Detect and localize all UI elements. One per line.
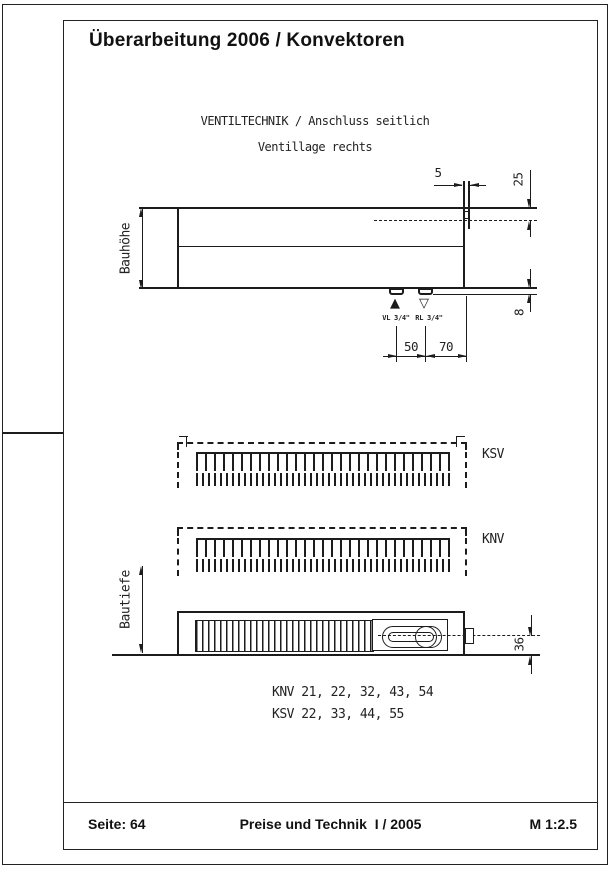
pipe-coupling-tick	[463, 211, 470, 212]
fold-mark	[2, 432, 63, 434]
corner-tick	[465, 442, 467, 450]
top-edge-extension-left	[139, 207, 177, 209]
dim-50: 50	[396, 339, 426, 354]
fin-comb-row	[196, 452, 450, 471]
return-triangle-icon: ▽	[419, 297, 429, 310]
drawing-title-line2: Ventillage rechts	[150, 140, 480, 154]
bracket-hook	[456, 436, 465, 437]
knv-label: KNV	[482, 532, 504, 547]
footer-scale: M 1:2.5	[530, 816, 577, 832]
ksv-label: KSV	[482, 447, 504, 462]
dim-70: 70	[431, 339, 461, 354]
arrowhead	[527, 221, 531, 230]
valve-spindle	[388, 632, 434, 642]
dimension-line-bautiefe	[142, 566, 143, 653]
pipe-coupling-tick	[463, 218, 470, 219]
bottom-edge-extension-left	[139, 287, 177, 289]
footer-edition: Preise und Technik I / 2005	[63, 816, 598, 832]
bautiefe-label: Bautiefe	[119, 565, 134, 635]
extension-line	[466, 296, 467, 362]
tab-bottom-line	[433, 294, 537, 295]
fin-comb-row	[196, 538, 450, 557]
arrowhead	[470, 183, 479, 187]
arrowhead	[426, 354, 435, 358]
page-title: Überarbeitung 2006 / Konvektoren	[89, 30, 405, 52]
corner-tick	[177, 527, 179, 536]
dim-25: 25	[511, 165, 526, 195]
model-list-ksv: KSV 22, 33, 44, 55	[272, 707, 404, 722]
arrowhead	[139, 208, 143, 217]
valve-connection-stub	[465, 628, 474, 644]
object-division-line	[179, 246, 463, 247]
arrowhead	[388, 354, 397, 358]
arrowhead	[458, 354, 467, 358]
connection-tab-rl	[418, 288, 433, 295]
dim-5: 5	[428, 165, 448, 180]
bracket-hook	[186, 436, 187, 447]
hidden-side-edge	[465, 538, 467, 576]
hidden-side-edge	[177, 452, 179, 488]
arrowhead	[527, 294, 531, 303]
arrowhead	[528, 627, 532, 636]
arrowhead	[417, 354, 426, 358]
bauhoehe-label: Bauhöhe	[119, 214, 134, 284]
pipe-centerline	[374, 220, 537, 221]
arrowhead	[139, 644, 143, 653]
supply-triangle-icon: ▲	[390, 297, 400, 310]
grille-hatch	[195, 620, 374, 652]
hidden-top-edge	[177, 527, 467, 529]
hidden-top-edge	[177, 442, 467, 444]
arrowhead	[527, 279, 531, 288]
footer-separator	[63, 802, 598, 803]
hidden-side-edge	[177, 538, 179, 576]
arrowhead	[528, 656, 532, 665]
arrowhead	[139, 280, 143, 289]
model-list-knv: KNV 21, 22, 32, 43, 54	[272, 685, 433, 700]
return-label: RL 3/4"	[409, 314, 449, 322]
fin-dense-row	[196, 559, 450, 572]
arrowhead	[527, 199, 531, 208]
drawing-title-line1: VENTILTECHNIK / Anschluss seitlich	[150, 114, 480, 128]
corner-tick	[465, 527, 467, 536]
scanned-catalog-page: Überarbeitung 2006 / Konvektoren VENTILT…	[0, 0, 616, 872]
bracket-hook	[456, 436, 457, 447]
dim-36: 36	[512, 630, 527, 660]
connection-tab-vl	[389, 288, 404, 295]
arrowhead	[454, 183, 463, 187]
corner-tick	[177, 442, 179, 450]
dim-8: 8	[512, 298, 527, 328]
dimension-line-bauhoehe	[142, 208, 143, 288]
pipe-stub	[463, 181, 470, 229]
fin-dense-row	[196, 473, 450, 486]
hidden-side-edge	[465, 452, 467, 488]
arrowhead	[139, 566, 143, 575]
